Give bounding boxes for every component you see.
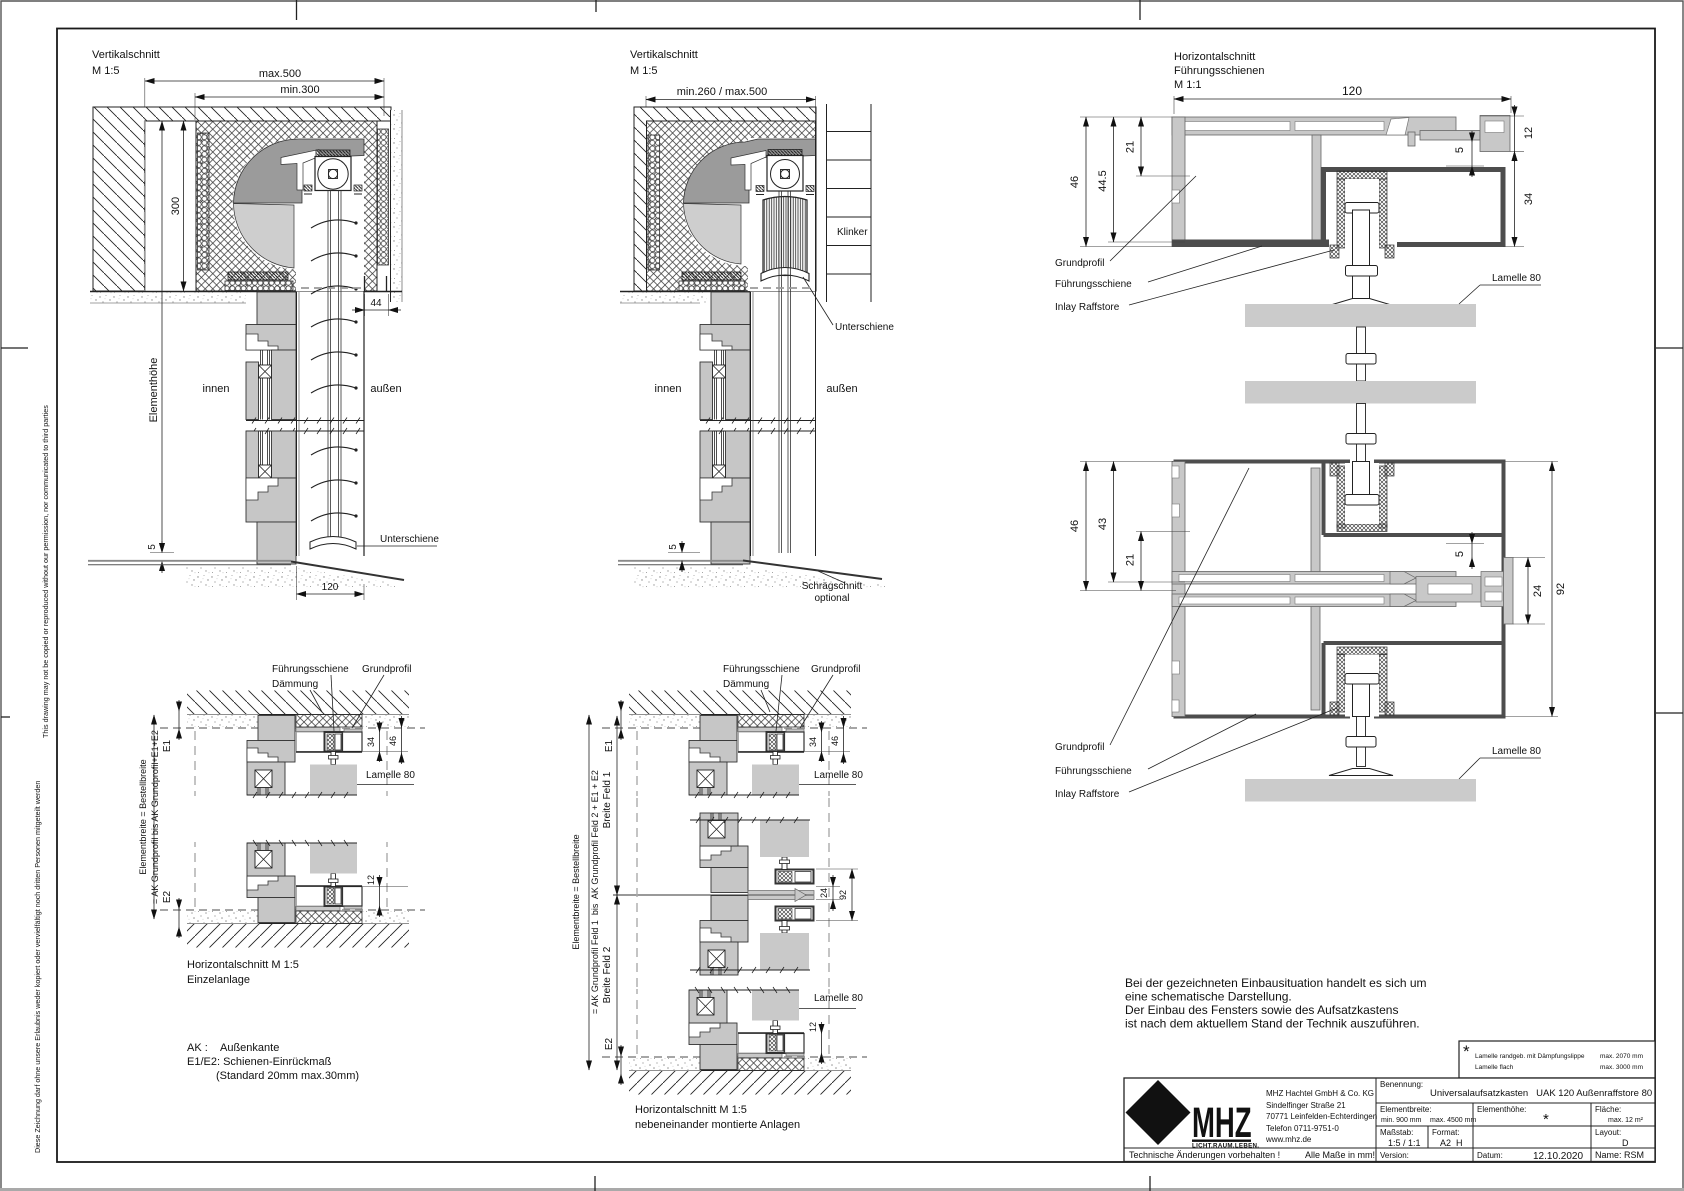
- svg-text:Elementbreite = Bestellbreite: Elementbreite = Bestellbreite: [138, 759, 148, 874]
- svg-text:Elementbreite:: Elementbreite:: [1380, 1105, 1432, 1114]
- svg-text:Führungsschiene: Führungsschiene: [272, 664, 349, 675]
- svg-text:MHZ Hachtel GmbH & Co. KG: MHZ Hachtel GmbH & Co. KG: [1266, 1089, 1374, 1098]
- svg-text:Inlay Raffstore: Inlay Raffstore: [1055, 302, 1120, 313]
- svg-text:Breite Feld 1: Breite Feld 1: [602, 771, 613, 828]
- svg-text:92: 92: [838, 890, 848, 900]
- svg-text:5: 5: [668, 544, 679, 550]
- svg-text:E2: E2: [604, 1037, 615, 1050]
- svg-text:Grundprofil: Grundprofil: [1055, 742, 1104, 753]
- svg-text:max. 4500 mm: max. 4500 mm: [1430, 1117, 1476, 1124]
- svg-text:Horizontalschnitt M 1:5: Horizontalschnitt M 1:5: [187, 959, 299, 971]
- svg-text:Bei der gezeichneten Einbausit: Bei der gezeichneten Einbausituation han…: [1125, 976, 1427, 990]
- svg-text:Lamelle randgeb. mit Dämpfungs: Lamelle randgeb. mit Dämpfungslippe: [1475, 1053, 1585, 1060]
- svg-text:Sindelfinger Straße 21: Sindelfinger Straße 21: [1266, 1101, 1346, 1110]
- svg-text:Elementbreite = Bestellbreite: Elementbreite = Bestellbreite: [571, 834, 581, 949]
- svg-text:Universalaufsatzkasten UAK 1: Universalaufsatzkasten UAK 120 Außenraff…: [1430, 1088, 1652, 1099]
- svg-text:min. 900 mm: min. 900 mm: [1381, 1117, 1422, 1124]
- svg-text:Dämmung: Dämmung: [272, 679, 318, 690]
- svg-text:5: 5: [1454, 551, 1466, 557]
- svg-text:Der Einbau des Fensters sowie: Der Einbau des Fensters sowie des Aufsat…: [1125, 1003, 1398, 1017]
- svg-text:12: 12: [808, 1022, 818, 1032]
- svg-text:(Standard 20mm max.30mm): (Standard 20mm max.30mm): [216, 1070, 359, 1082]
- svg-text:46: 46: [1069, 520, 1081, 532]
- svg-text:24: 24: [819, 888, 829, 898]
- svg-text:34: 34: [366, 737, 376, 747]
- svg-text:*: *: [1543, 1111, 1549, 1128]
- svg-text:M 1:1: M 1:1: [1174, 79, 1202, 91]
- svg-text:außen: außen: [370, 383, 401, 395]
- svg-text:Vertikalschnitt: Vertikalschnitt: [630, 49, 698, 61]
- svg-text:Führungsschiene: Führungsschiene: [1055, 766, 1132, 777]
- svg-text:Elementhöhe:: Elementhöhe:: [1477, 1105, 1526, 1114]
- svg-text:Fläche:: Fläche:: [1595, 1105, 1621, 1114]
- svg-text:max.500: max.500: [259, 68, 301, 80]
- svg-text:nebeneinander montierte Anlage: nebeneinander montierte Anlagen: [635, 1119, 800, 1131]
- svg-text:E1: E1: [162, 739, 173, 752]
- svg-text:Unterschiene: Unterschiene: [380, 534, 439, 545]
- svg-text:Benennung:: Benennung:: [1380, 1080, 1423, 1089]
- svg-text:46: 46: [1069, 176, 1081, 188]
- svg-text:Grundprofil: Grundprofil: [1055, 258, 1104, 269]
- svg-text:A2_H: A2_H: [1440, 1138, 1463, 1148]
- svg-text:eine schematische Darstellung.: eine schematische Darstellung.: [1125, 990, 1292, 1004]
- svg-text:MHZ: MHZ: [1192, 1098, 1252, 1147]
- svg-text:Elementhöhe: Elementhöhe: [148, 358, 160, 423]
- svg-text:www.mhz.de: www.mhz.de: [1265, 1135, 1312, 1144]
- svg-text:Datum:: Datum:: [1477, 1151, 1503, 1160]
- svg-text:Schrägschnitt: Schrägschnitt: [802, 581, 863, 592]
- svg-text:Dämmung: Dämmung: [723, 679, 769, 690]
- svg-text:34: 34: [1523, 193, 1535, 205]
- svg-text:E2: E2: [162, 890, 173, 903]
- svg-text:Führungsschienen: Führungsschienen: [1174, 65, 1265, 77]
- svg-text:Lamelle 80: Lamelle 80: [814, 993, 863, 1004]
- svg-text:= AK Grundprofil Feld 1 bis: = AK Grundprofil Feld 1 bis AK Grundprof…: [590, 770, 600, 1014]
- svg-text:Lamelle 80: Lamelle 80: [1492, 273, 1541, 284]
- svg-text:5: 5: [1454, 147, 1466, 153]
- svg-text:This drawing may not be copied: This drawing may not be copied or reprod…: [41, 405, 50, 738]
- svg-text:120: 120: [1342, 84, 1362, 98]
- svg-text:Format:: Format:: [1432, 1128, 1460, 1137]
- svg-text:E1: E1: [604, 739, 615, 752]
- svg-text:12.10.2020: 12.10.2020: [1533, 1151, 1583, 1162]
- svg-text:M 1:5: M 1:5: [630, 65, 658, 77]
- svg-text:Lamelle 80: Lamelle 80: [1492, 746, 1541, 757]
- svg-text:Grundprofil: Grundprofil: [362, 664, 411, 675]
- svg-text:Unterschiene: Unterschiene: [835, 322, 894, 333]
- svg-text:AK : Außenkante: AK : Außenkante: [187, 1042, 279, 1054]
- svg-text:Breite Feld 2: Breite Feld 2: [602, 946, 613, 1003]
- svg-text:= AK Grundprofil bis AK Grundp: = AK Grundprofil bis AK Grundprofil+E1+E…: [150, 730, 160, 904]
- svg-text:Inlay Raffstore: Inlay Raffstore: [1055, 789, 1120, 800]
- svg-text:300: 300: [170, 197, 182, 215]
- svg-text:Telefon 0711-9751-0: Telefon 0711-9751-0: [1266, 1124, 1339, 1133]
- svg-text:12: 12: [1523, 127, 1535, 139]
- svg-text:21: 21: [1125, 554, 1137, 566]
- svg-text:21: 21: [1125, 141, 1137, 153]
- svg-text:optional: optional: [814, 593, 849, 604]
- svg-text:min.300: min.300: [280, 84, 319, 96]
- svg-text:44.5: 44.5: [1097, 170, 1109, 191]
- svg-text:min.260 / max.500: min.260 / max.500: [677, 86, 768, 98]
- svg-text:Lamelle 80: Lamelle 80: [366, 770, 415, 781]
- svg-text:Name: RSM: Name: RSM: [1595, 1150, 1644, 1160]
- svg-text:Diese Zeichnung darf ohne unse: Diese Zeichnung darf ohne unsere Erlaubn…: [33, 781, 42, 1153]
- svg-text:Lamelle 80: Lamelle 80: [814, 770, 863, 781]
- svg-text:Horizontalschnitt M 1:5: Horizontalschnitt M 1:5: [635, 1104, 747, 1116]
- svg-text:46: 46: [830, 736, 840, 746]
- svg-text:*: *: [1463, 1042, 1470, 1061]
- svg-text:70771 Leinfelden-Echterdingen: 70771 Leinfelden-Echterdingen: [1266, 1112, 1377, 1121]
- svg-text:D: D: [1622, 1138, 1629, 1148]
- svg-text:43: 43: [1097, 518, 1109, 530]
- svg-text:44: 44: [370, 298, 382, 309]
- svg-text:Version:: Version:: [1380, 1151, 1409, 1160]
- svg-text:Vertikalschnitt: Vertikalschnitt: [92, 49, 160, 61]
- svg-text:innen: innen: [203, 383, 230, 395]
- svg-text:24: 24: [1532, 585, 1544, 597]
- svg-text:Lamelle flach: Lamelle flach: [1475, 1064, 1514, 1071]
- svg-text:120: 120: [322, 582, 339, 593]
- svg-text:M 1:5: M 1:5: [92, 65, 120, 77]
- svg-text:E1/E2: Schienen-Einrückmaß: E1/E2: Schienen-Einrückmaß: [187, 1056, 332, 1068]
- svg-text:Grundprofil: Grundprofil: [811, 664, 860, 675]
- svg-text:46: 46: [388, 736, 398, 746]
- svg-text:ist nach dem aktuellem Stand d: ist nach dem aktuellem Stand der Technik…: [1125, 1017, 1420, 1031]
- svg-text:Layout:: Layout:: [1595, 1128, 1621, 1137]
- svg-text:max. 2070 mm: max. 2070 mm: [1600, 1053, 1643, 1060]
- svg-text:max. 12 m²: max. 12 m²: [1608, 1117, 1644, 1124]
- svg-text:Klinker: Klinker: [837, 227, 868, 238]
- svg-text:Führungsschiene: Führungsschiene: [723, 664, 800, 675]
- svg-text:Horizontalschnitt: Horizontalschnitt: [1174, 51, 1255, 63]
- svg-text:Führungsschiene: Führungsschiene: [1055, 279, 1132, 290]
- svg-text:LICHT.RAUM.LEBEN.: LICHT.RAUM.LEBEN.: [1192, 1143, 1259, 1150]
- svg-text:Maßstab:: Maßstab:: [1380, 1128, 1413, 1137]
- svg-text:Technische Änderungen vorbehal: Technische Änderungen vorbehalten !: [1129, 1150, 1280, 1160]
- svg-text:Einzelanlage: Einzelanlage: [187, 974, 250, 986]
- svg-text:92: 92: [1555, 583, 1567, 595]
- svg-text:max. 3000 mm: max. 3000 mm: [1600, 1064, 1643, 1071]
- svg-text:innen: innen: [655, 383, 682, 395]
- svg-text:1:5 / 1:1: 1:5 / 1:1: [1388, 1138, 1421, 1148]
- svg-text:Alle Maße in mm!: Alle Maße in mm!: [1305, 1150, 1375, 1160]
- svg-text:12: 12: [366, 875, 376, 885]
- svg-text:außen: außen: [826, 383, 857, 395]
- svg-text:34: 34: [808, 737, 818, 747]
- svg-text:5: 5: [147, 544, 158, 550]
